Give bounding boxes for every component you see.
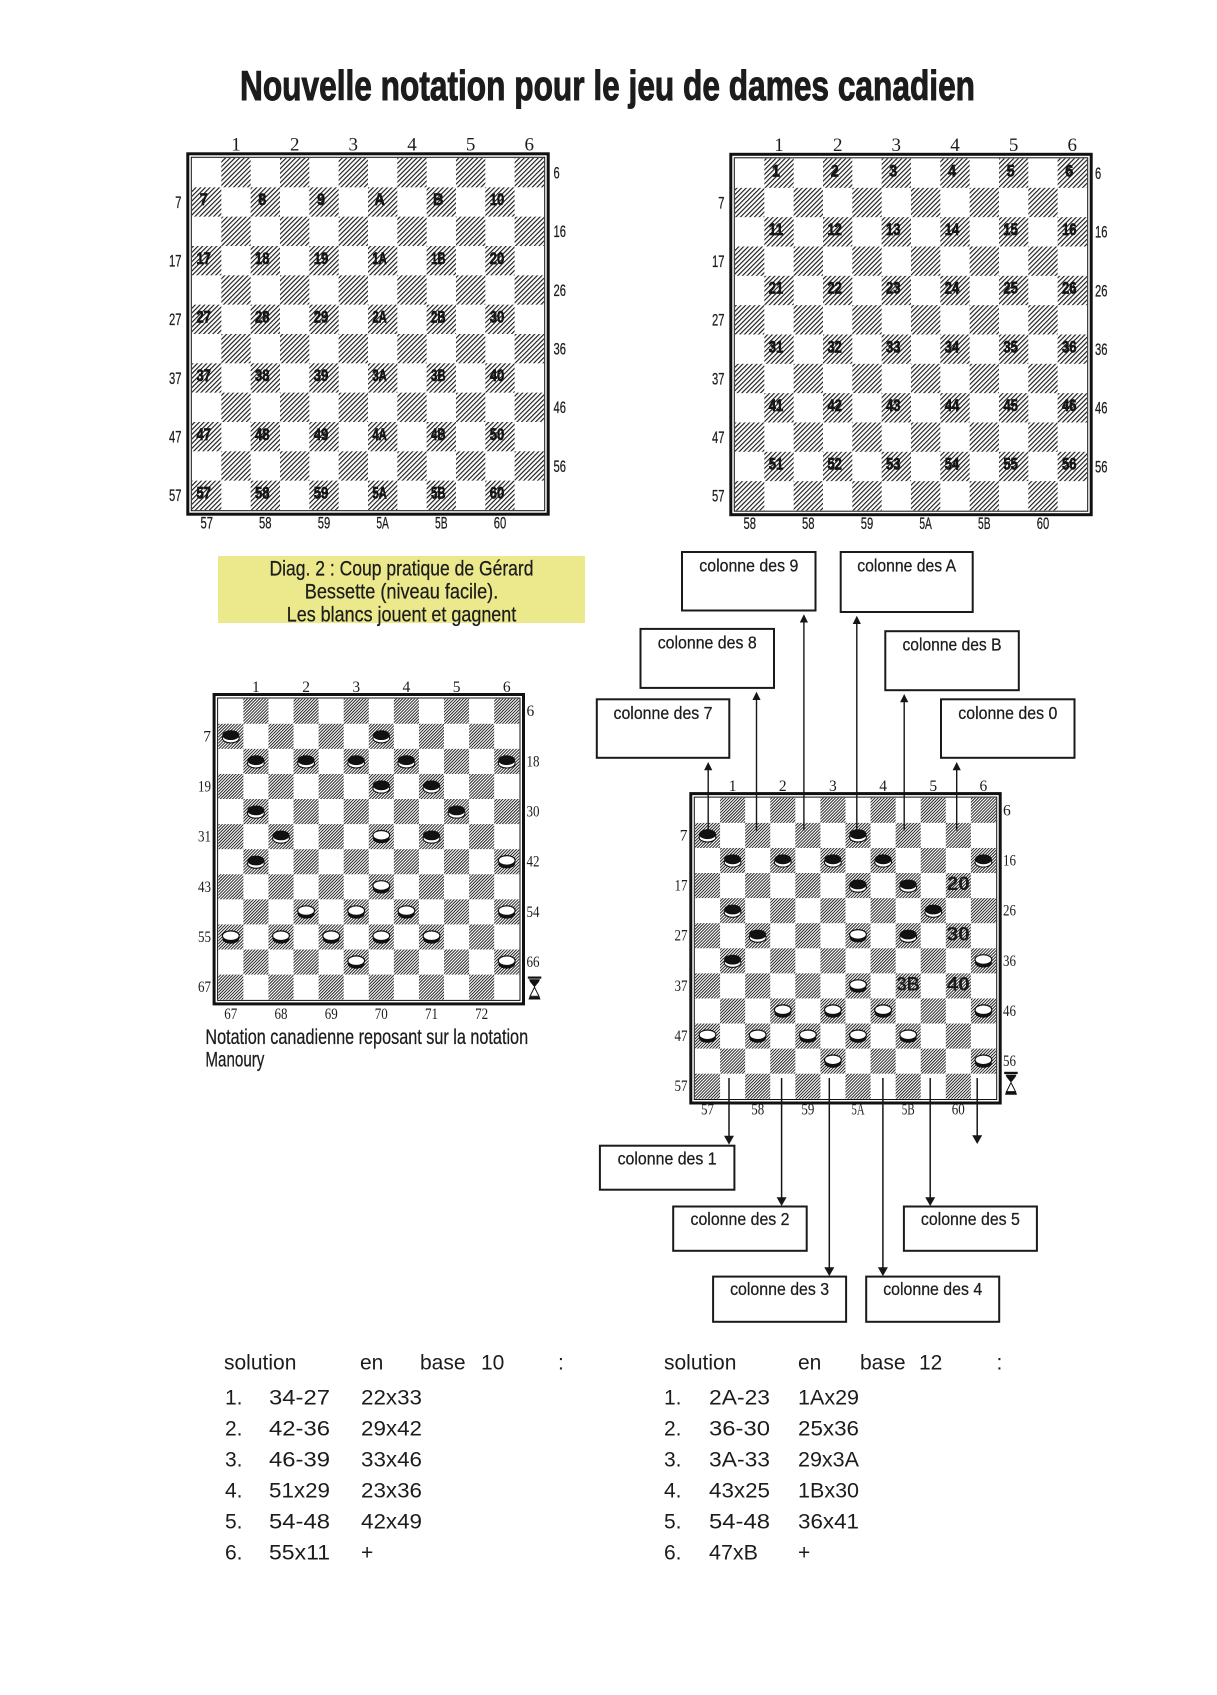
- svg-text:9: 9: [317, 191, 325, 209]
- svg-text:46: 46: [1003, 1003, 1016, 1020]
- svg-text:3: 3: [352, 679, 360, 696]
- svg-text:71: 71: [425, 1006, 438, 1023]
- svg-text:5A: 5A: [919, 515, 932, 533]
- svg-text:16: 16: [1003, 853, 1016, 870]
- svg-text:67: 67: [224, 1006, 237, 1023]
- svg-text:57: 57: [712, 488, 725, 506]
- svg-text:6.: 6.: [664, 1542, 682, 1565]
- svg-text:1B: 1B: [431, 250, 446, 268]
- svg-text:colonne des 4: colonne des 4: [883, 1279, 982, 1299]
- svg-text:36: 36: [1062, 338, 1077, 356]
- svg-text:57: 57: [675, 1078, 688, 1095]
- svg-text:60: 60: [490, 485, 505, 503]
- svg-text:16: 16: [554, 223, 567, 241]
- svg-text:47: 47: [712, 429, 725, 447]
- svg-text:12: 12: [827, 221, 842, 239]
- svg-text:1Bx30: 1Bx30: [798, 1480, 859, 1503]
- svg-text:6: 6: [527, 703, 535, 720]
- svg-text:6: 6: [1068, 135, 1078, 156]
- svg-text:54: 54: [527, 904, 540, 921]
- svg-text:56: 56: [1062, 456, 1077, 474]
- svg-text:67: 67: [198, 979, 211, 996]
- svg-text:30: 30: [947, 924, 970, 945]
- svg-text:30: 30: [527, 804, 540, 821]
- svg-text:1: 1: [252, 679, 260, 696]
- svg-text:2: 2: [290, 135, 300, 156]
- svg-text:4.: 4.: [664, 1480, 682, 1503]
- svg-text:6: 6: [503, 679, 511, 696]
- svg-text:55x11: 55x11: [269, 1542, 330, 1565]
- svg-text:5: 5: [1009, 135, 1019, 156]
- svg-text:43: 43: [886, 397, 901, 415]
- svg-text:B: B: [433, 191, 444, 209]
- svg-text:56: 56: [1095, 458, 1108, 476]
- svg-text:Notation canadienne reposant s: Notation canadienne reposant sur la nota…: [205, 1026, 528, 1049]
- svg-text:37: 37: [712, 370, 725, 388]
- svg-text:36: 36: [1003, 953, 1016, 970]
- svg-text:17: 17: [712, 253, 725, 271]
- svg-text:34: 34: [945, 338, 960, 356]
- svg-text:3B: 3B: [431, 367, 446, 385]
- svg-text:1.: 1.: [664, 1387, 682, 1410]
- svg-text:27: 27: [675, 928, 688, 945]
- svg-text::: :: [558, 1352, 564, 1375]
- svg-text:13: 13: [886, 221, 901, 239]
- svg-text:2: 2: [831, 162, 839, 180]
- svg-text:38: 38: [255, 367, 270, 385]
- svg-text:46: 46: [554, 399, 567, 417]
- svg-text:55: 55: [198, 929, 211, 946]
- svg-text:16: 16: [1095, 224, 1108, 242]
- svg-text:10: 10: [490, 191, 505, 209]
- svg-text:59: 59: [801, 1102, 814, 1119]
- svg-text:48: 48: [255, 426, 270, 444]
- svg-text:19: 19: [314, 250, 329, 268]
- svg-text:17: 17: [196, 250, 211, 268]
- svg-text:5B: 5B: [431, 485, 446, 503]
- svg-text:51x29: 51x29: [269, 1480, 330, 1503]
- svg-text:31: 31: [769, 338, 784, 356]
- svg-text:53: 53: [886, 456, 901, 474]
- svg-text:57: 57: [701, 1102, 714, 1119]
- svg-text:56: 56: [554, 458, 567, 476]
- svg-text:6.: 6.: [225, 1542, 243, 1565]
- svg-text:5B: 5B: [902, 1102, 915, 1119]
- svg-text:1: 1: [729, 778, 737, 795]
- svg-text:23x36: 23x36: [361, 1480, 422, 1503]
- svg-text:58: 58: [802, 515, 815, 533]
- svg-text:4A: 4A: [372, 426, 387, 444]
- svg-text:3: 3: [889, 162, 897, 180]
- svg-text:base: base: [420, 1352, 466, 1375]
- svg-text:6: 6: [980, 778, 988, 795]
- svg-text:36: 36: [1095, 341, 1108, 359]
- svg-text:4: 4: [407, 135, 417, 156]
- svg-text:28: 28: [255, 309, 270, 327]
- svg-text:54-48: 54-48: [269, 1511, 330, 1534]
- svg-text:26: 26: [1062, 280, 1077, 298]
- svg-text:5A: 5A: [376, 515, 389, 533]
- svg-text:8: 8: [258, 191, 266, 209]
- svg-text:5: 5: [929, 778, 937, 795]
- svg-text:47: 47: [675, 1028, 688, 1045]
- svg-text:36: 36: [554, 340, 567, 358]
- svg-text:7: 7: [718, 194, 724, 212]
- svg-text:17: 17: [675, 878, 688, 895]
- svg-text:32: 32: [827, 338, 842, 356]
- svg-text:2A-23: 2A-23: [709, 1387, 770, 1410]
- svg-text:42: 42: [527, 854, 540, 871]
- svg-text:51: 51: [769, 456, 784, 474]
- svg-text:12: 12: [919, 1352, 942, 1375]
- svg-text:colonne des 3: colonne des 3: [730, 1279, 829, 1299]
- svg-text:7: 7: [200, 191, 208, 209]
- svg-text:18: 18: [527, 753, 540, 770]
- svg-text:4B: 4B: [431, 426, 446, 444]
- svg-text:+: +: [798, 1542, 810, 1565]
- svg-text:50: 50: [490, 426, 505, 444]
- svg-text:colonne des 1: colonne des 1: [618, 1148, 717, 1168]
- svg-text:6: 6: [554, 165, 560, 183]
- svg-text:2.: 2.: [225, 1418, 243, 1441]
- svg-text:2.: 2.: [664, 1418, 682, 1441]
- svg-text:4: 4: [950, 135, 960, 156]
- svg-text:Les blancs jouent et gagnent: Les blancs jouent et gagnent: [287, 604, 517, 627]
- svg-text:colonne des 8: colonne des 8: [658, 632, 757, 652]
- svg-text:colonne des 7: colonne des 7: [614, 703, 713, 723]
- svg-text:6: 6: [1065, 162, 1073, 180]
- svg-text:23: 23: [886, 280, 901, 298]
- svg-text:5B: 5B: [978, 515, 991, 533]
- svg-text:en: en: [798, 1352, 821, 1375]
- svg-text:2A: 2A: [372, 309, 387, 327]
- svg-text:37: 37: [675, 978, 688, 995]
- svg-text:colonne des 0: colonne des 0: [958, 703, 1057, 723]
- svg-text:47xB: 47xB: [709, 1542, 758, 1565]
- svg-text::: :: [997, 1352, 1003, 1375]
- svg-text:1.: 1.: [225, 1387, 243, 1410]
- svg-text:68: 68: [275, 1006, 288, 1023]
- svg-text:54: 54: [945, 456, 960, 474]
- svg-text:37: 37: [196, 367, 211, 385]
- svg-text:Manoury: Manoury: [205, 1049, 264, 1072]
- svg-text:27: 27: [169, 311, 182, 329]
- svg-text:20: 20: [947, 874, 970, 895]
- svg-text:4.: 4.: [225, 1480, 243, 1503]
- svg-text:57: 57: [200, 515, 213, 533]
- svg-text:60: 60: [1037, 515, 1050, 533]
- svg-text:5: 5: [466, 135, 476, 156]
- svg-text:colonne des 2: colonne des 2: [691, 1209, 790, 1229]
- svg-text:54-48: 54-48: [709, 1511, 770, 1534]
- svg-text:6: 6: [1003, 802, 1011, 819]
- svg-text:3.: 3.: [225, 1449, 243, 1472]
- svg-text:42x49: 42x49: [361, 1511, 422, 1534]
- svg-text:4: 4: [879, 778, 887, 795]
- svg-text:42: 42: [827, 397, 842, 415]
- svg-text:2B: 2B: [431, 309, 446, 327]
- svg-text:3A-33: 3A-33: [709, 1449, 770, 1472]
- svg-text:+: +: [361, 1542, 373, 1565]
- svg-text:base: base: [860, 1352, 906, 1375]
- svg-text:40: 40: [947, 975, 970, 996]
- svg-text:26: 26: [554, 282, 567, 300]
- svg-text:17: 17: [169, 253, 182, 271]
- svg-text:3: 3: [349, 135, 359, 156]
- svg-text:4: 4: [403, 679, 411, 696]
- svg-text:43x25: 43x25: [709, 1480, 770, 1503]
- svg-text:Bessette (niveau facile).: Bessette (niveau facile).: [305, 581, 499, 604]
- svg-text:31: 31: [198, 829, 211, 846]
- svg-text:6: 6: [525, 135, 535, 156]
- svg-text:solution: solution: [664, 1352, 736, 1375]
- svg-text:25: 25: [1003, 280, 1018, 298]
- svg-text:1A: 1A: [372, 250, 387, 268]
- svg-text:33x46: 33x46: [361, 1449, 422, 1472]
- svg-text:5B: 5B: [435, 515, 448, 533]
- svg-text:52: 52: [827, 456, 842, 474]
- svg-text:40: 40: [490, 367, 505, 385]
- svg-text:29: 29: [314, 309, 329, 327]
- svg-text:24: 24: [945, 280, 960, 298]
- svg-text:colonne des B: colonne des B: [903, 635, 1002, 655]
- svg-text:58: 58: [751, 1102, 764, 1119]
- svg-text:26: 26: [1095, 282, 1108, 300]
- svg-text:69: 69: [325, 1006, 338, 1023]
- svg-text:46: 46: [1062, 397, 1077, 415]
- svg-text:37: 37: [169, 370, 182, 388]
- svg-text:59: 59: [318, 515, 331, 533]
- svg-text:46: 46: [1095, 400, 1108, 418]
- svg-text:39: 39: [314, 367, 329, 385]
- svg-text:36-30: 36-30: [709, 1418, 770, 1441]
- svg-text:49: 49: [314, 426, 329, 444]
- svg-text:43: 43: [198, 879, 211, 896]
- svg-text:35: 35: [1003, 338, 1018, 356]
- svg-text:58: 58: [255, 485, 270, 503]
- svg-text:4: 4: [948, 162, 956, 180]
- svg-text:1: 1: [772, 162, 780, 180]
- svg-text:66: 66: [527, 954, 540, 971]
- svg-text:16: 16: [1062, 221, 1077, 239]
- svg-text:3A: 3A: [372, 367, 387, 385]
- svg-text:5A: 5A: [852, 1102, 866, 1119]
- svg-text:22x33: 22x33: [361, 1387, 422, 1410]
- svg-text:41: 41: [769, 397, 784, 415]
- svg-text:55: 55: [1003, 456, 1018, 474]
- svg-text:5.: 5.: [225, 1511, 243, 1534]
- svg-text:47: 47: [196, 426, 211, 444]
- svg-text:60: 60: [494, 515, 507, 533]
- svg-text:6: 6: [1095, 165, 1101, 183]
- svg-text:15: 15: [1003, 221, 1018, 239]
- svg-text:5A: 5A: [372, 485, 387, 503]
- svg-text:1: 1: [774, 135, 784, 156]
- svg-text:2: 2: [302, 679, 310, 696]
- svg-text:44: 44: [945, 397, 960, 415]
- svg-text:14: 14: [945, 221, 960, 239]
- svg-text:57: 57: [196, 485, 211, 503]
- svg-text:3B: 3B: [897, 975, 920, 996]
- svg-text:45: 45: [1003, 397, 1018, 415]
- svg-text:7: 7: [680, 827, 688, 844]
- svg-text:en: en: [360, 1352, 383, 1375]
- svg-text:72: 72: [475, 1006, 488, 1023]
- svg-text:26: 26: [1003, 903, 1016, 920]
- svg-text:47: 47: [169, 428, 182, 446]
- svg-text:19: 19: [198, 779, 211, 796]
- svg-text:34-27: 34-27: [269, 1387, 330, 1410]
- svg-text:colonne des A: colonne des A: [857, 556, 956, 576]
- svg-text:29x3A: 29x3A: [798, 1449, 859, 1472]
- svg-text:solution: solution: [224, 1352, 296, 1375]
- svg-text:60: 60: [952, 1102, 965, 1119]
- svg-text:5: 5: [453, 679, 461, 696]
- svg-text:3: 3: [829, 778, 837, 795]
- svg-text:27: 27: [196, 309, 211, 327]
- svg-text:Diag. 2 : Coup pratique de Gér: Diag. 2 : Coup pratique de Gérard: [270, 558, 534, 581]
- svg-text:3.: 3.: [664, 1449, 682, 1472]
- svg-text:36x41: 36x41: [798, 1511, 859, 1534]
- svg-text:18: 18: [255, 250, 270, 268]
- svg-text:3: 3: [892, 135, 902, 156]
- svg-text:42-36: 42-36: [269, 1418, 330, 1441]
- svg-text:46-39: 46-39: [269, 1449, 330, 1472]
- svg-text:2: 2: [779, 778, 787, 795]
- svg-text:58: 58: [259, 515, 272, 533]
- svg-text:59: 59: [861, 515, 874, 533]
- svg-text:2: 2: [833, 135, 843, 156]
- svg-text:colonne des 9: colonne des 9: [699, 556, 798, 576]
- svg-text:1Ax29: 1Ax29: [798, 1387, 859, 1410]
- svg-text:70: 70: [375, 1006, 388, 1023]
- svg-text:colonne des 5: colonne des 5: [921, 1209, 1020, 1229]
- svg-text:30: 30: [490, 309, 505, 327]
- svg-text:22: 22: [827, 280, 842, 298]
- svg-text:Nouvelle notation pour le jeu: Nouvelle notation pour le jeu de dames c…: [240, 62, 975, 109]
- svg-text:5.: 5.: [664, 1511, 682, 1534]
- svg-text:7: 7: [203, 728, 211, 745]
- svg-text:56: 56: [1003, 1053, 1016, 1070]
- svg-text:29x42: 29x42: [361, 1418, 422, 1441]
- svg-text:5: 5: [1007, 162, 1015, 180]
- svg-text:21: 21: [769, 280, 784, 298]
- svg-text:11: 11: [769, 221, 784, 239]
- svg-text:33: 33: [886, 338, 901, 356]
- svg-text:57: 57: [169, 487, 182, 505]
- svg-text:7: 7: [175, 194, 181, 212]
- svg-text:20: 20: [490, 250, 505, 268]
- svg-text:27: 27: [712, 312, 725, 330]
- svg-text:A: A: [374, 191, 385, 209]
- svg-text:58: 58: [743, 515, 756, 533]
- svg-text:10: 10: [481, 1352, 504, 1375]
- svg-text:1: 1: [231, 135, 241, 156]
- svg-text:59: 59: [314, 485, 329, 503]
- svg-text:25x36: 25x36: [798, 1418, 859, 1441]
